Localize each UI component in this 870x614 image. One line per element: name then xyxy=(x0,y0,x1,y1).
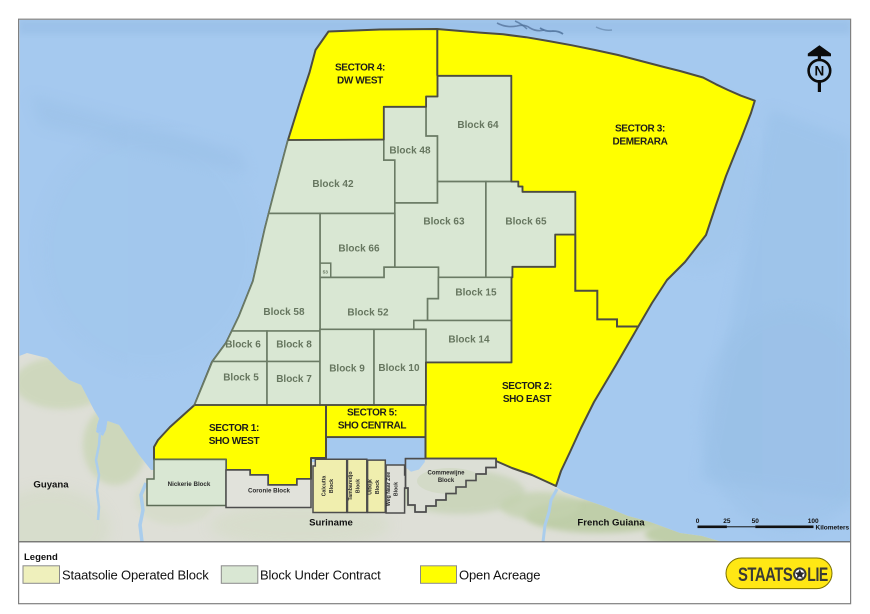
svg-text:French Guiana: French Guiana xyxy=(577,518,645,529)
svg-text:Staatsolie Operated Block: Staatsolie Operated Block xyxy=(62,568,209,583)
svg-text:Commewijne: Commewijne xyxy=(427,471,465,477)
svg-text:STAATS: STAATS xyxy=(738,563,792,586)
svg-text:SECTOR 1:: SECTOR 1: xyxy=(209,423,259,434)
svg-text:53: 53 xyxy=(323,270,329,276)
svg-text:Guyana: Guyana xyxy=(33,480,69,491)
svg-text:SECTOR 5:: SECTOR 5: xyxy=(347,408,397,419)
svg-text:50: 50 xyxy=(752,518,760,525)
svg-text:N: N xyxy=(815,64,825,79)
svg-text:Block 52: Block 52 xyxy=(347,308,389,319)
svg-text:SHO CENTRAL: SHO CENTRAL xyxy=(338,421,407,432)
svg-text:Weg Naar Zee: Weg Naar Zee xyxy=(386,472,392,506)
svg-text:Uitkijk: Uitkijk xyxy=(368,479,374,495)
svg-text:Tambaredjo: Tambaredjo xyxy=(348,471,354,500)
svg-text:Block 48: Block 48 xyxy=(389,146,431,157)
svg-text:Suriname: Suriname xyxy=(309,518,353,529)
svg-text:Block 65: Block 65 xyxy=(505,217,547,228)
svg-text:Block 6: Block 6 xyxy=(225,340,261,351)
svg-text:Nickerie Block: Nickerie Block xyxy=(168,481,211,488)
svg-text:Block 64: Block 64 xyxy=(457,120,499,131)
svg-text:Calcutta: Calcutta xyxy=(322,476,328,497)
svg-text:SECTOR 4:: SECTOR 4: xyxy=(335,63,385,74)
svg-text:Block 10: Block 10 xyxy=(378,363,420,374)
svg-text:Block 42: Block 42 xyxy=(312,179,354,190)
svg-text:Coronie Block: Coronie Block xyxy=(248,488,291,495)
svg-text:Block: Block xyxy=(356,479,362,493)
svg-text:DW WEST: DW WEST xyxy=(337,76,383,87)
svg-text:DEMERARA: DEMERARA xyxy=(613,137,668,148)
svg-text:Block Under Contract: Block Under Contract xyxy=(260,568,381,583)
svg-text:25: 25 xyxy=(723,518,731,525)
svg-text:Block 15: Block 15 xyxy=(455,288,497,299)
svg-text:Open Acreage: Open Acreage xyxy=(459,568,540,583)
svg-text:0: 0 xyxy=(696,518,700,525)
svg-text:Block: Block xyxy=(329,479,335,493)
svg-text:Block 8: Block 8 xyxy=(276,340,312,351)
svg-text:SHO WEST: SHO WEST xyxy=(209,436,260,447)
svg-text:Block 66: Block 66 xyxy=(338,244,380,255)
svg-text:LIE: LIE xyxy=(807,564,828,586)
svg-text:Kilometers: Kilometers xyxy=(816,525,850,532)
svg-text:Block 9: Block 9 xyxy=(329,364,365,375)
svg-text:Block: Block xyxy=(375,480,381,494)
svg-text:SECTOR 2:: SECTOR 2: xyxy=(502,381,552,392)
svg-text:Block 63: Block 63 xyxy=(423,217,465,228)
svg-text:Block 7: Block 7 xyxy=(276,374,312,385)
svg-text:Block 14: Block 14 xyxy=(448,335,490,346)
svg-text:SHO EAST: SHO EAST xyxy=(503,394,552,405)
svg-text:Block: Block xyxy=(438,478,455,484)
svg-text:Block 58: Block 58 xyxy=(263,307,305,318)
svg-text:Block: Block xyxy=(394,482,400,496)
svg-text:Block 5: Block 5 xyxy=(223,373,259,384)
svg-text:Legend: Legend xyxy=(24,552,58,563)
svg-text:SECTOR 3:: SECTOR 3: xyxy=(615,124,665,135)
